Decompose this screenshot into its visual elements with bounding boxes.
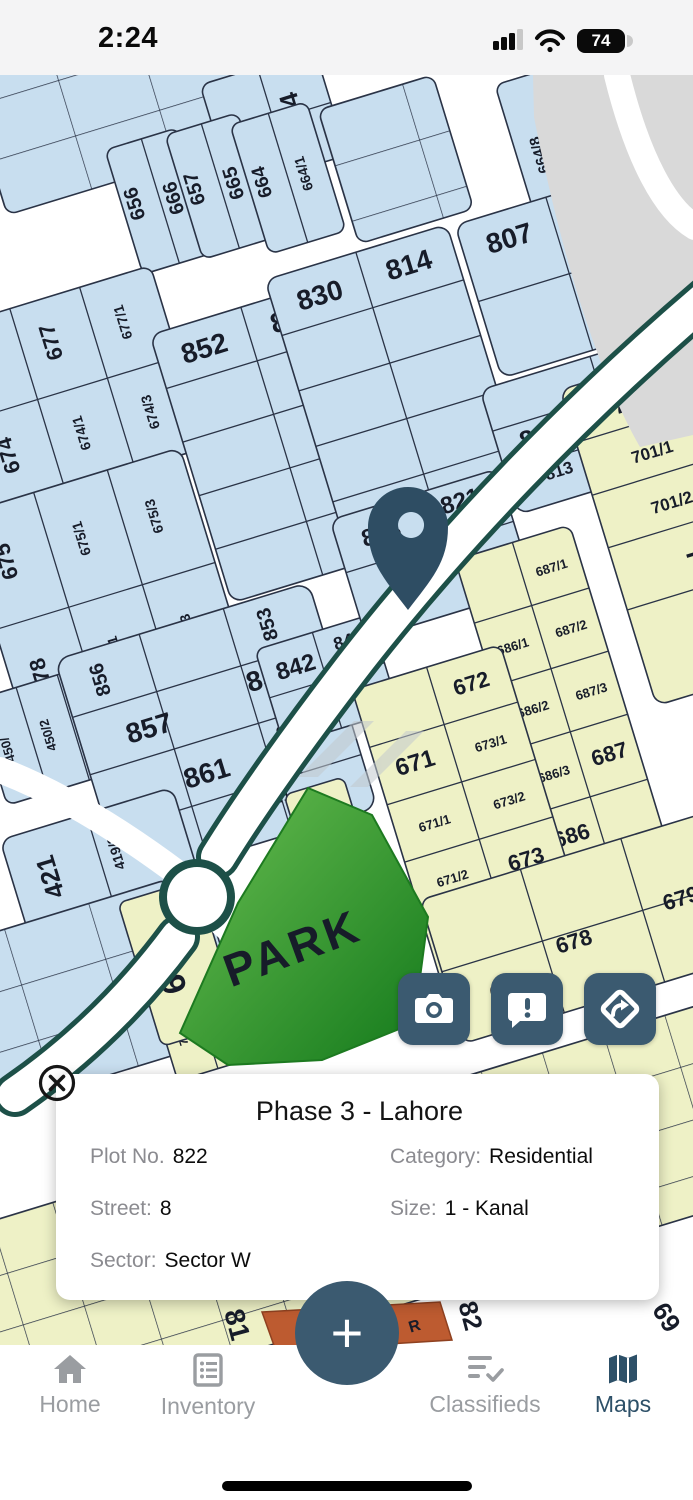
home-indicator <box>222 1481 472 1491</box>
field-size: Size:1 - Kanal <box>390 1197 629 1221</box>
status-bar: 2:24 74 <box>0 0 693 75</box>
nav-item-classifieds[interactable]: Classifieds <box>415 1353 555 1418</box>
nav-item-maps[interactable]: Maps <box>553 1353 693 1418</box>
add-button[interactable]: + <box>295 1281 399 1385</box>
camera-button[interactable] <box>398 973 470 1045</box>
close-icon <box>36 1062 78 1104</box>
field-category: Category:Residential <box>390 1145 629 1169</box>
nav-item-inventory[interactable]: Inventory <box>138 1353 278 1420</box>
camera-icon <box>412 990 456 1028</box>
plot-info-card: Phase 3 - Lahore Plot No.822 Category:Re… <box>56 1074 659 1300</box>
nav-item-home[interactable]: Home <box>0 1353 140 1418</box>
directions-icon <box>597 986 643 1032</box>
field-street: Street:8 <box>90 1197 390 1221</box>
map-action-buttons <box>398 973 656 1045</box>
field-sector: Sector:Sector W <box>90 1249 390 1273</box>
card-fields: Plot No.822 Category:Residential Street:… <box>90 1145 629 1273</box>
status-icons: 74 <box>491 22 661 58</box>
battery-percent: 74 <box>592 31 611 50</box>
classifieds-icon <box>466 1353 504 1385</box>
battery-icon: 74 <box>577 29 633 53</box>
maps-icon <box>606 1353 640 1385</box>
close-card-button[interactable] <box>36 1062 78 1104</box>
card-title: Phase 3 - Lahore <box>90 1096 629 1127</box>
wifi-icon <box>537 31 563 52</box>
field-plot-no: Plot No.822 <box>90 1145 390 1169</box>
report-chat-icon <box>506 989 548 1029</box>
plus-icon: + <box>331 1301 364 1364</box>
cellular-signal-icon <box>493 29 523 50</box>
roundabout <box>159 859 235 935</box>
directions-button[interactable] <box>584 973 656 1045</box>
report-button[interactable] <box>491 973 563 1045</box>
home-icon <box>52 1353 88 1385</box>
status-time: 2:24 <box>88 22 168 55</box>
inventory-icon <box>191 1353 225 1387</box>
